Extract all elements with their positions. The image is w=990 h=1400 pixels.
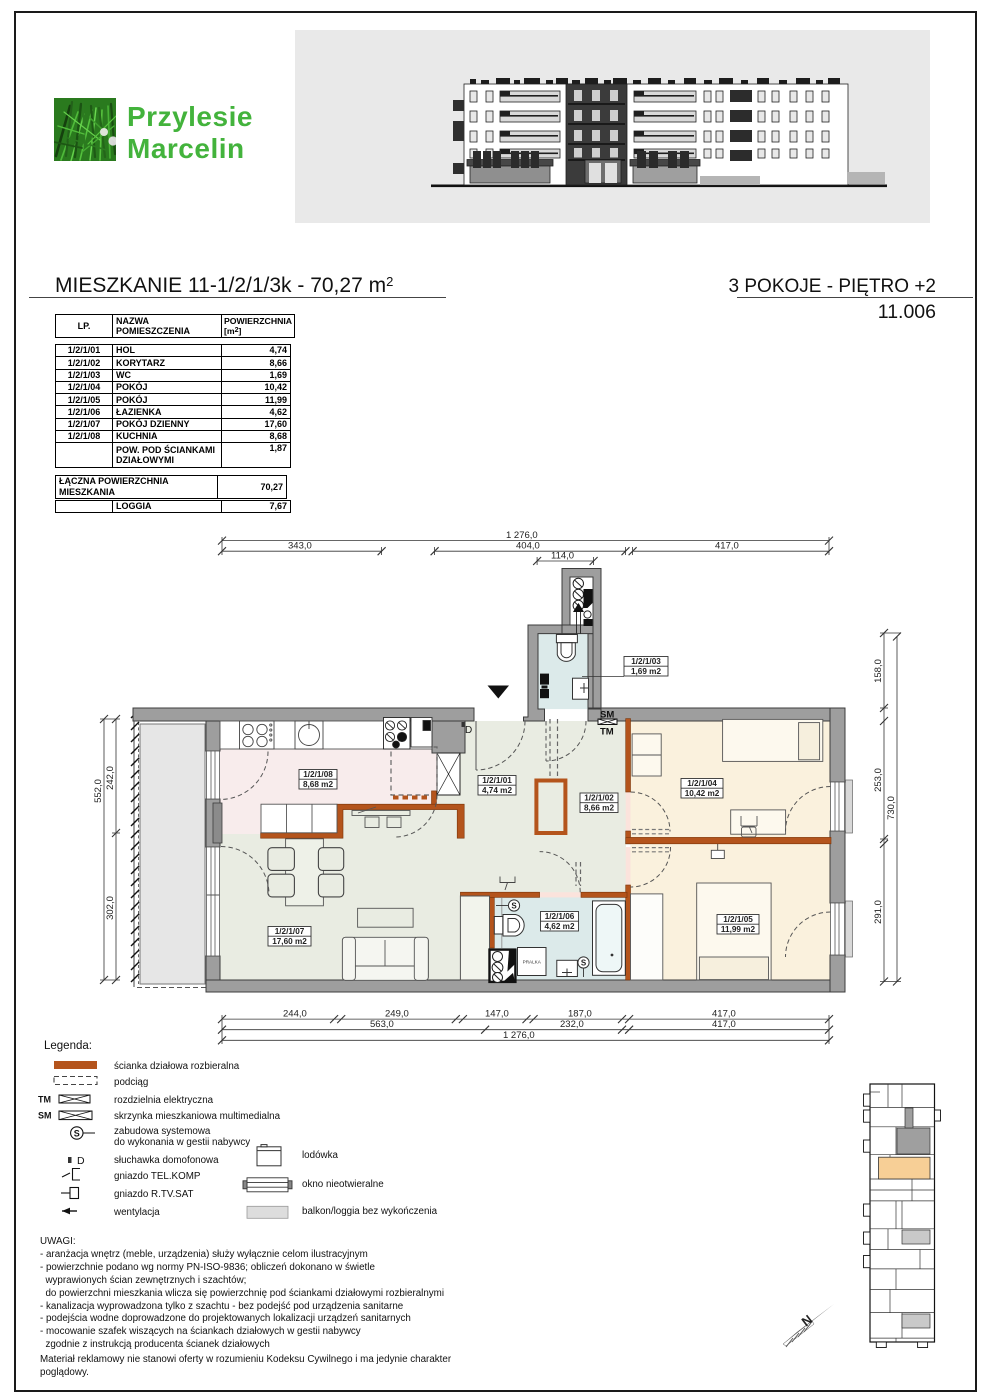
svg-text:114,0: 114,0 [551, 551, 574, 562]
svg-text:343,0: 343,0 [288, 541, 312, 552]
svg-text:S: S [511, 902, 517, 911]
svg-text:8,68 m2: 8,68 m2 [303, 780, 333, 789]
svg-text:S: S [581, 959, 587, 968]
svg-text:563,0: 563,0 [370, 1019, 394, 1030]
svg-text:249,0: 249,0 [385, 1009, 409, 1020]
svg-text:17,60 m2: 17,60 m2 [272, 937, 307, 946]
svg-text:TM: TM [600, 727, 614, 738]
svg-text:158,0: 158,0 [873, 659, 884, 683]
svg-text:1/2/1/08: 1/2/1/08 [303, 770, 333, 779]
svg-text:SM: SM [38, 1111, 52, 1121]
svg-text:404,0: 404,0 [516, 541, 540, 552]
svg-text:242,0: 242,0 [105, 766, 116, 790]
svg-text:302,0: 302,0 [105, 896, 116, 920]
svg-text:1/2/1/01: 1/2/1/01 [482, 776, 512, 785]
svg-text:1 276,0: 1 276,0 [506, 530, 538, 541]
svg-text:4,62 m2: 4,62 m2 [544, 922, 574, 931]
svg-text:1/2/1/06: 1/2/1/06 [545, 912, 575, 921]
svg-text:1/2/1/02: 1/2/1/02 [584, 794, 614, 803]
svg-text:8,66 m2: 8,66 m2 [584, 803, 614, 812]
svg-text:1/2/1/07: 1/2/1/07 [275, 927, 305, 936]
svg-text:PRALKA: PRALKA [523, 960, 542, 965]
svg-text:D: D [77, 1155, 85, 1167]
svg-text:187,0: 187,0 [568, 1009, 592, 1020]
svg-text:4,74 m2: 4,74 m2 [482, 786, 512, 795]
svg-text:417,0: 417,0 [715, 541, 739, 552]
svg-text:291,0: 291,0 [873, 900, 884, 924]
svg-text:1 276,0: 1 276,0 [503, 1030, 535, 1041]
svg-text:552,0: 552,0 [93, 779, 104, 803]
svg-text:S: S [74, 1128, 80, 1138]
svg-text:1/2/1/04: 1/2/1/04 [687, 779, 717, 788]
svg-text:11,99 m2: 11,99 m2 [721, 925, 756, 934]
svg-text:244,0: 244,0 [283, 1009, 307, 1020]
svg-text:417,0: 417,0 [712, 1019, 736, 1030]
svg-text:1/2/1/05: 1/2/1/05 [723, 915, 753, 924]
svg-text:147,0: 147,0 [485, 1009, 509, 1020]
svg-text:730,0: 730,0 [886, 796, 897, 820]
svg-text:1/2/1/03: 1/2/1/03 [631, 657, 661, 666]
svg-text:1,69 m2: 1,69 m2 [631, 667, 661, 676]
svg-text:10,42 m2: 10,42 m2 [685, 789, 720, 798]
svg-text:TM: TM [38, 1095, 51, 1105]
svg-text:232,0: 232,0 [560, 1019, 584, 1030]
svg-text:N: N [799, 1312, 816, 1330]
svg-text:417,0: 417,0 [712, 1009, 736, 1020]
svg-text:D: D [465, 725, 472, 736]
svg-text:253,0: 253,0 [873, 768, 884, 792]
